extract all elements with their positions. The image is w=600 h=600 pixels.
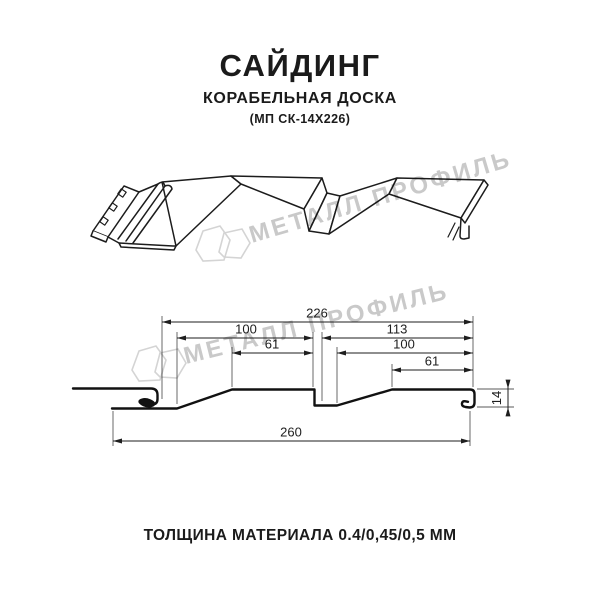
page: САЙДИНГ КОРАБЕЛЬНАЯ ДОСКА (МП СК-14Х226) — [0, 0, 600, 600]
dim-right-module: 113 — [387, 322, 408, 337]
dim-right-flat-module: 100 — [393, 337, 415, 352]
nail-strip — [93, 186, 139, 237]
dimension-lines — [113, 322, 508, 441]
dim-total-width: 260 — [280, 425, 302, 440]
watermark-brand-text: МЕТАЛЛ ПРОФИЛЬ — [181, 278, 452, 370]
lock-hook — [139, 399, 154, 407]
j-fold-hatch — [448, 223, 459, 240]
profile-outline — [73, 389, 475, 409]
brand-logo-icon — [132, 346, 186, 381]
material-thickness-note: ТОЛЩИНА МАТЕРИАЛА 0.4/0,45/0,5 ММ — [0, 527, 600, 545]
main-profile-line — [112, 390, 475, 409]
brand-logo-icon — [196, 226, 250, 261]
dim-profile-height: 14 — [489, 391, 504, 405]
technical-drawing: 226 100 113 61 100 61 260 14 МЕТАЛЛ ПРОФ… — [0, 0, 600, 600]
dim-right-flat: 61 — [425, 354, 439, 369]
